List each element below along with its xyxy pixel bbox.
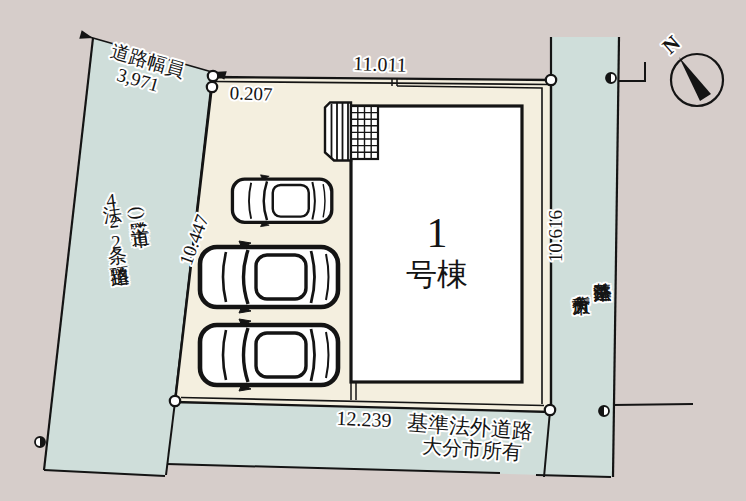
car-3: [200, 319, 338, 391]
site-plan: N 11.011 0.207 12.239 10.447 10.616 道路幅員…: [0, 0, 746, 501]
dimension-corner-offset: 0.207: [229, 82, 272, 104]
dimension-bottom-width: 12.239: [336, 407, 392, 431]
building-suffix: 号棟: [406, 257, 468, 292]
dimension-top-width: 11.011: [353, 52, 407, 76]
leader-line-bottom-right: [613, 404, 693, 405]
car-2: [200, 241, 338, 313]
survey-point-top-right: [546, 75, 556, 85]
entrance-canopy-icon: [325, 103, 351, 161]
survey-point-top-left-1: [208, 71, 218, 81]
survey-point-bottom-left: [170, 396, 180, 406]
right-road-name-label: 基準法外道路: [590, 268, 613, 281]
car-1: [232, 175, 331, 227]
survey-point-bottom-right: [545, 405, 555, 415]
survey-point-top-left-2: [207, 82, 217, 92]
entrance-tile-grid-icon: [351, 106, 378, 159]
building-number: 1: [427, 210, 448, 256]
right-road-owner-label: 大分市所有: [568, 269, 591, 282]
left-road-label: 道路(市道) 法42条2項道路: [97, 185, 154, 254]
dimension-right-depth: 10.616: [545, 210, 566, 262]
right-road-label: 基準法外道路 大分市所有: [568, 268, 613, 282]
